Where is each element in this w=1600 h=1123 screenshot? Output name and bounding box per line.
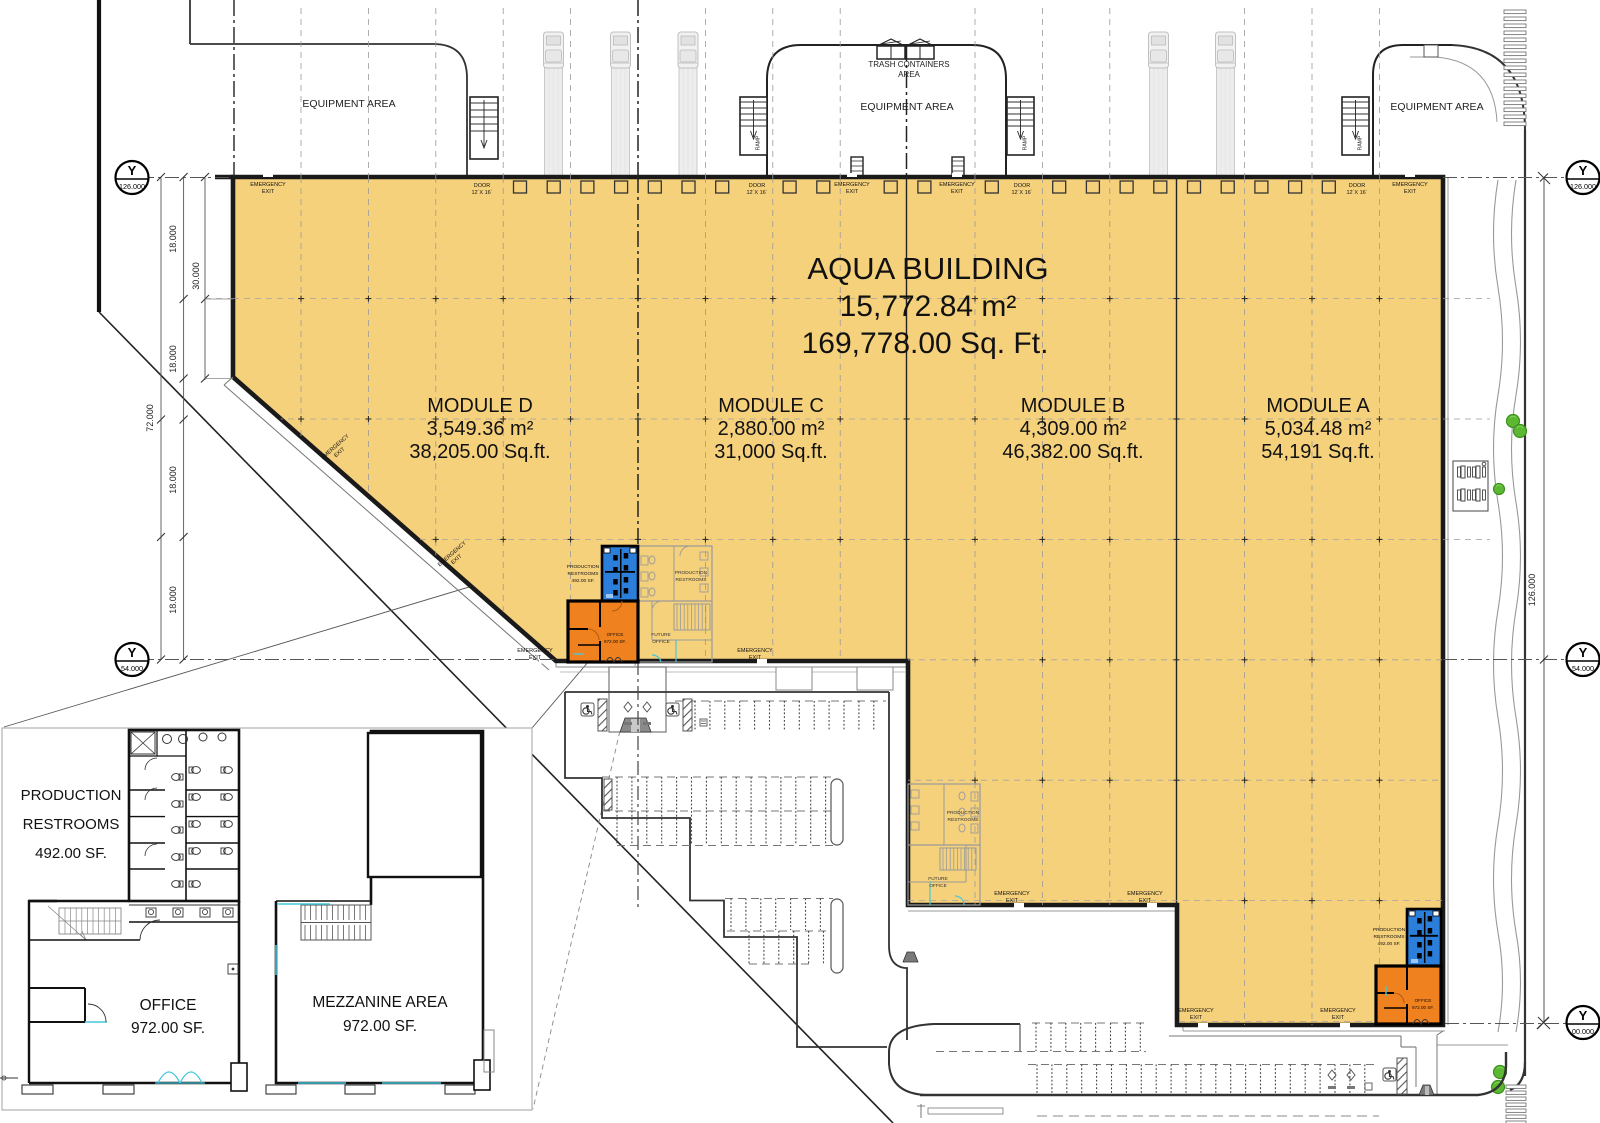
svg-text:RAMP: RAMP — [1358, 135, 1364, 150]
svg-text:46,382.00 Sq.ft.: 46,382.00 Sq.ft. — [1002, 441, 1143, 463]
svg-text:RESTROOMS: RESTROOMS — [948, 817, 979, 823]
svg-text:EXIT: EXIT — [846, 189, 859, 195]
svg-text:EMERGENCY: EMERGENCY — [1392, 182, 1428, 188]
svg-text:15,772.84 m²: 15,772.84 m² — [840, 290, 1017, 323]
svg-text:EMERGENCY: EMERGENCY — [834, 182, 870, 188]
svg-text:EXIT: EXIT — [1139, 898, 1152, 904]
svg-text:PRODUCTION: PRODUCTION — [675, 570, 708, 576]
svg-text:492.00 SF.: 492.00 SF. — [35, 845, 107, 862]
svg-text:3,549.36 m²: 3,549.36 m² — [427, 418, 534, 440]
svg-text:RESTROOMS: RESTROOMS — [23, 816, 120, 833]
svg-text:PRODUCTION: PRODUCTION — [567, 564, 600, 570]
svg-text:MODULE C: MODULE C — [718, 395, 824, 417]
svg-text:DOOR: DOOR — [1349, 183, 1366, 189]
svg-text:MEZZANINE AREA: MEZZANINE AREA — [312, 994, 448, 1011]
svg-text:12´X 16´: 12´X 16´ — [746, 190, 767, 196]
svg-text:EXIT: EXIT — [262, 189, 275, 195]
svg-text:EMERGENCY: EMERGENCY — [1127, 891, 1163, 897]
svg-text:RESTROOMS: RESTROOMS — [568, 571, 599, 577]
svg-text:EQUIPMENT AREA: EQUIPMENT AREA — [302, 98, 395, 110]
svg-text:FUTURE: FUTURE — [928, 876, 947, 882]
svg-text:RAMP: RAMP — [756, 135, 762, 150]
svg-text:EXIT: EXIT — [1404, 189, 1417, 195]
svg-text:TRASH CONTAINERS: TRASH CONTAINERS — [868, 60, 949, 69]
svg-text:RESTROOMS: RESTROOMS — [676, 577, 707, 583]
svg-text:DOOR: DOOR — [474, 183, 491, 189]
svg-text:30.000: 30.000 — [191, 262, 201, 290]
svg-text:EXIT: EXIT — [1006, 898, 1019, 904]
svg-text:31,000 Sq.ft.: 31,000 Sq.ft. — [714, 441, 827, 463]
svg-text:126.000: 126.000 — [1570, 182, 1596, 191]
svg-text:PRODUCTION: PRODUCTION — [1373, 927, 1406, 933]
svg-text:PRODUCTION: PRODUCTION — [21, 787, 122, 804]
svg-text:OFFICE: OFFICE — [1415, 998, 1432, 1003]
svg-text:54,191 Sq.ft.: 54,191 Sq.ft. — [1261, 441, 1374, 463]
svg-text:Y: Y — [1579, 1008, 1588, 1023]
svg-text:EMERGENCY: EMERGENCY — [994, 891, 1030, 897]
svg-text:MODULE B: MODULE B — [1021, 395, 1125, 417]
svg-text:MODULE A: MODULE A — [1266, 395, 1370, 417]
svg-text:2,880.00 m²: 2,880.00 m² — [718, 418, 825, 440]
svg-text:EXIT: EXIT — [749, 655, 762, 661]
svg-text:Y: Y — [128, 645, 137, 660]
svg-text:EXIT: EXIT — [951, 189, 964, 195]
svg-text:EXIT: EXIT — [1332, 1015, 1345, 1021]
svg-text:18.000: 18.000 — [168, 345, 178, 373]
svg-text:Y: Y — [1579, 645, 1588, 660]
svg-text:972.00 SF.: 972.00 SF. — [1412, 1005, 1434, 1010]
svg-text:FUTURE: FUTURE — [651, 632, 670, 638]
svg-text:972.00 SF.: 972.00 SF. — [343, 1018, 417, 1035]
svg-text:EXIT: EXIT — [1190, 1015, 1203, 1021]
svg-text:OFFICE: OFFICE — [140, 997, 197, 1014]
svg-text:4,309.00 m²: 4,309.00 m² — [1020, 418, 1127, 440]
svg-text:18.000: 18.000 — [168, 586, 178, 614]
svg-text:54.000: 54.000 — [1572, 664, 1594, 673]
svg-text:38,205.00 Sq.ft.: 38,205.00 Sq.ft. — [409, 441, 550, 463]
svg-text:DOOR: DOOR — [1014, 183, 1031, 189]
svg-text:Y: Y — [1579, 163, 1588, 178]
svg-text:5,034.48 m²: 5,034.48 m² — [1265, 418, 1372, 440]
svg-text:492.00 SF.: 492.00 SF. — [572, 578, 595, 584]
svg-text:DOOR: DOOR — [749, 183, 766, 189]
svg-text:OFFICE: OFFICE — [929, 883, 947, 889]
svg-text:Y: Y — [128, 163, 137, 178]
svg-text:EMERGENCY: EMERGENCY — [939, 182, 975, 188]
svg-text:972.00 SF.: 972.00 SF. — [131, 1020, 205, 1037]
svg-text:169,778.00 Sq. Ft.: 169,778.00 Sq. Ft. — [802, 327, 1049, 360]
svg-text:MODULE D: MODULE D — [427, 395, 533, 417]
svg-text:54.000: 54.000 — [121, 664, 143, 673]
svg-text:OFFICE: OFFICE — [607, 632, 624, 637]
svg-text:EQUIPMENT AREA: EQUIPMENT AREA — [1390, 101, 1483, 113]
svg-text:492.00 SF.: 492.00 SF. — [1378, 941, 1401, 947]
svg-text:18.000: 18.000 — [168, 225, 178, 253]
svg-text:972.00 SF.: 972.00 SF. — [604, 639, 626, 644]
svg-text:RAMP: RAMP — [1023, 135, 1029, 150]
svg-text:PRODUCTION: PRODUCTION — [947, 810, 980, 816]
svg-text:OFFICE: OFFICE — [652, 639, 670, 645]
svg-text:126.000: 126.000 — [1527, 574, 1537, 607]
svg-text:72.000: 72.000 — [145, 404, 155, 432]
svg-text:12´X 16´: 12´X 16´ — [471, 190, 492, 196]
svg-text:EMERGENCY: EMERGENCY — [1320, 1008, 1356, 1014]
svg-text:00.000: 00.000 — [1572, 1027, 1594, 1036]
svg-text:18.000: 18.000 — [168, 466, 178, 494]
svg-text:EXIT: EXIT — [529, 655, 542, 661]
svg-text:AQUA BUILDING: AQUA BUILDING — [807, 251, 1048, 286]
svg-text:EMERGENCY: EMERGENCY — [250, 182, 286, 188]
svg-text:12´X 16´: 12´X 16´ — [1011, 190, 1032, 196]
svg-text:EMERGENCY: EMERGENCY — [1178, 1008, 1214, 1014]
svg-text:EMERGENCY: EMERGENCY — [517, 648, 553, 654]
svg-text:AREA: AREA — [898, 70, 920, 79]
svg-text:EMERGENCY: EMERGENCY — [737, 648, 773, 654]
svg-text:126.000: 126.000 — [119, 182, 145, 191]
svg-text:RESTROOMS: RESTROOMS — [1374, 934, 1405, 940]
svg-text:12´X 16´: 12´X 16´ — [1346, 190, 1367, 196]
